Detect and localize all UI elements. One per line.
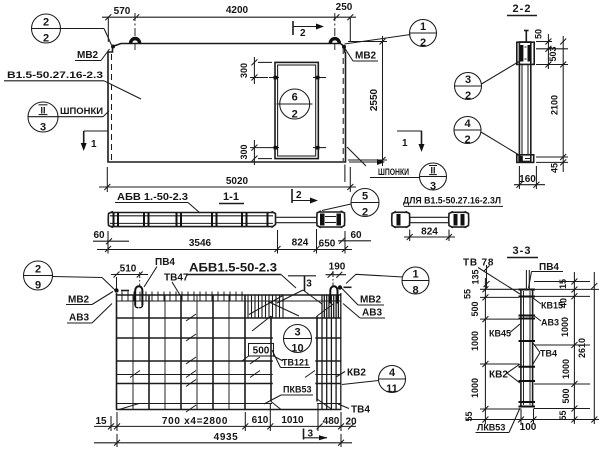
svg-text:6: 6 xyxy=(292,92,298,104)
svg-text:ШПОНКИ: ШПОНКИ xyxy=(378,167,409,177)
svg-text:ТВ4: ТВ4 xyxy=(351,405,370,416)
svg-text:2: 2 xyxy=(465,90,471,102)
svg-text:2: 2 xyxy=(43,33,49,45)
svg-text:КВ2: КВ2 xyxy=(489,370,508,381)
svg-text:9: 9 xyxy=(35,280,41,292)
svg-text:МВ2: МВ2 xyxy=(77,50,99,61)
svg-text:3: 3 xyxy=(430,181,436,193)
svg-text:ЛКВ53: ЛКВ53 xyxy=(477,423,505,433)
svg-text:АВ3: АВ3 xyxy=(69,313,89,324)
svg-text:2610: 2610 xyxy=(577,338,587,358)
svg-text:II: II xyxy=(40,106,45,116)
svg-text:60: 60 xyxy=(350,230,362,241)
svg-text:1010: 1010 xyxy=(281,415,304,426)
svg-text:1000: 1000 xyxy=(470,378,480,398)
svg-text:5020: 5020 xyxy=(226,176,249,187)
svg-text:2-2: 2-2 xyxy=(513,3,532,15)
svg-text:4935: 4935 xyxy=(214,432,239,443)
svg-text:2: 2 xyxy=(35,264,41,276)
svg-text:300: 300 xyxy=(239,144,249,159)
svg-text:4: 4 xyxy=(389,367,396,379)
svg-text:5: 5 xyxy=(362,191,368,203)
svg-text:АБВ 1.-50-2.3: АБВ 1.-50-2.3 xyxy=(117,192,188,203)
svg-text:МВ2: МВ2 xyxy=(355,51,377,62)
svg-text:1: 1 xyxy=(420,21,426,33)
svg-text:610: 610 xyxy=(252,415,269,426)
svg-text:503: 503 xyxy=(548,46,558,61)
svg-text:ПКВ53: ПКВ53 xyxy=(283,385,311,395)
svg-text:2: 2 xyxy=(296,190,302,201)
svg-text:2: 2 xyxy=(420,37,426,49)
svg-text:КВ15: КВ15 xyxy=(541,301,563,311)
svg-text:4: 4 xyxy=(464,118,471,130)
svg-text:570: 570 xyxy=(114,6,131,17)
svg-text:2: 2 xyxy=(464,134,470,146)
svg-text:1000: 1000 xyxy=(470,331,480,351)
svg-text:3: 3 xyxy=(465,74,471,86)
svg-text:2100: 2100 xyxy=(550,95,560,115)
svg-text:60: 60 xyxy=(93,230,105,241)
svg-text:3: 3 xyxy=(306,279,312,290)
svg-text:190: 190 xyxy=(329,262,346,273)
svg-text:ПВ4: ПВ4 xyxy=(155,257,175,268)
svg-text:500: 500 xyxy=(561,388,571,403)
svg-text:500: 500 xyxy=(253,346,270,357)
svg-text:135: 135 xyxy=(471,269,481,284)
svg-text:КВ2: КВ2 xyxy=(347,368,366,379)
svg-text:50: 50 xyxy=(534,29,544,39)
svg-text:1000: 1000 xyxy=(560,317,570,337)
svg-text:3546: 3546 xyxy=(189,238,212,249)
svg-text:700 х4=2800: 700 х4=2800 xyxy=(162,416,228,427)
svg-text:10: 10 xyxy=(291,343,303,355)
svg-text:II: II xyxy=(430,166,435,176)
svg-text:1000: 1000 xyxy=(561,359,571,379)
svg-text:КВ45: КВ45 xyxy=(489,329,511,339)
svg-text:160: 160 xyxy=(519,174,536,185)
svg-text:650: 650 xyxy=(319,239,336,250)
svg-text:ДЛЯ В1.5-50.27.16-2.3Л: ДЛЯ В1.5-50.27.16-2.3Л xyxy=(403,196,501,206)
svg-text:55: 55 xyxy=(463,289,473,299)
svg-text:824: 824 xyxy=(292,238,309,249)
svg-text:11: 11 xyxy=(386,383,398,395)
svg-text:3: 3 xyxy=(40,122,46,134)
svg-text:45: 45 xyxy=(550,163,560,173)
svg-text:100: 100 xyxy=(520,422,537,433)
svg-text:2: 2 xyxy=(292,109,298,121)
svg-text:300: 300 xyxy=(239,63,249,78)
svg-text:АВ3: АВ3 xyxy=(362,308,382,319)
svg-text:МВ2: МВ2 xyxy=(68,295,90,306)
svg-text:510: 510 xyxy=(120,264,137,275)
svg-text:В1.5-50.27.16-2.3: В1.5-50.27.16-2.3 xyxy=(7,70,103,80)
svg-text:АВ3: АВ3 xyxy=(541,318,559,328)
svg-text:1: 1 xyxy=(91,139,97,150)
svg-text:2: 2 xyxy=(43,17,49,29)
svg-text:2: 2 xyxy=(300,28,306,39)
svg-text:20: 20 xyxy=(345,417,357,428)
svg-text:3: 3 xyxy=(294,327,300,339)
svg-text:15: 15 xyxy=(558,279,568,289)
svg-text:55: 55 xyxy=(558,410,568,420)
svg-text:8: 8 xyxy=(412,285,418,297)
svg-text:1-1: 1-1 xyxy=(223,191,239,203)
svg-text:ШПОНКИ: ШПОНКИ xyxy=(60,106,103,116)
svg-text:ТВ121: ТВ121 xyxy=(282,358,309,368)
svg-text:480: 480 xyxy=(323,416,340,427)
svg-text:МВ2: МВ2 xyxy=(360,295,382,306)
svg-text:3-3: 3-3 xyxy=(513,245,532,257)
svg-text:250: 250 xyxy=(336,2,353,13)
svg-text:АБВ1.5-50-2.3: АБВ1.5-50-2.3 xyxy=(189,263,277,275)
svg-text:2: 2 xyxy=(362,207,368,219)
svg-text:4200: 4200 xyxy=(226,5,249,16)
svg-text:824: 824 xyxy=(421,227,438,238)
svg-text:ТВ4: ТВ4 xyxy=(540,349,557,359)
svg-text:ТВ47: ТВ47 xyxy=(164,273,189,284)
svg-text:ТВ 78: ТВ 78 xyxy=(463,258,494,269)
svg-text:500: 500 xyxy=(470,301,480,316)
svg-text:1: 1 xyxy=(402,138,408,149)
svg-text:2550: 2550 xyxy=(369,88,380,111)
svg-text:1: 1 xyxy=(412,269,418,281)
svg-text:15: 15 xyxy=(95,416,107,427)
